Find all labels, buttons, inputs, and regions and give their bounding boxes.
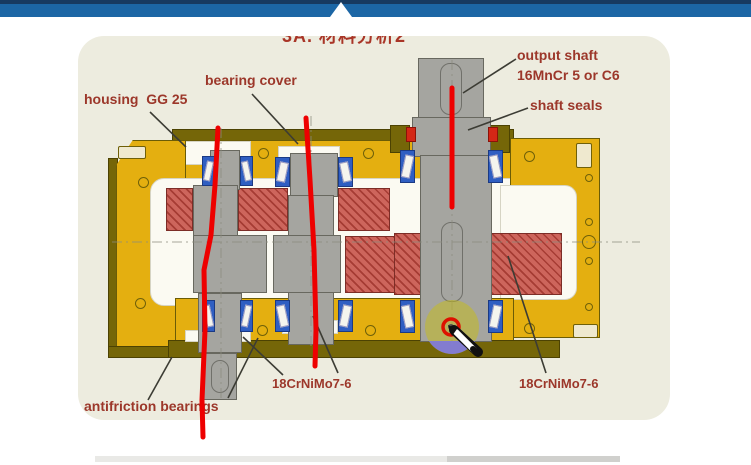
bearing-a-bottom-left — [202, 300, 215, 332]
bearing-a-top-right — [240, 156, 253, 186]
bearing-b-bottom-left — [275, 300, 290, 332]
output-shaft-keyway-top — [440, 63, 462, 115]
hex-bolt-right-top — [576, 143, 592, 168]
bearing-b-top-left — [275, 157, 290, 187]
output-shaft-keyway-long — [441, 222, 463, 302]
label-shaft-seals: shaft seals — [530, 98, 602, 113]
bolt-hole — [524, 323, 535, 334]
scrollbar-thumb[interactable] — [447, 456, 620, 462]
shaft-a-gear-hub — [193, 185, 238, 237]
bearing-c-top-right — [488, 150, 503, 183]
bolt-hole — [582, 235, 596, 249]
shaft-seal-right — [488, 127, 498, 142]
bolt-hole — [257, 325, 268, 336]
label-antifriction-bearings: antifriction bearings — [84, 399, 219, 414]
bolt-hole — [585, 174, 593, 182]
bolt-hole — [524, 151, 535, 162]
hex-bolt-right-bottom — [573, 324, 598, 338]
label-gear-material-center: 18CrNiMo7-6 — [272, 377, 351, 391]
bearing-a-top-left — [202, 156, 215, 186]
label-bearing-cover: bearing cover — [205, 73, 297, 88]
label-housing: housing GG 25 — [84, 92, 187, 107]
gear-output-left — [394, 233, 421, 295]
header-top-strip — [0, 0, 751, 4]
bearing-c-bottom-left — [400, 300, 415, 333]
label-output-shaft-material: 16MnCr 5 or C6 — [517, 68, 620, 83]
bolt-hole — [585, 257, 593, 265]
gear-stage1-right — [338, 188, 390, 231]
shaft-a-wide-hub — [193, 235, 267, 293]
bottom-scrollbar[interactable] — [95, 456, 620, 462]
gear-stage1-left — [166, 188, 193, 231]
hex-bolt-left-top — [118, 146, 146, 159]
bolt-hole — [585, 218, 593, 226]
bolt-hole — [363, 148, 374, 159]
shaft-seal-left — [406, 127, 416, 142]
bolt-hole — [365, 325, 376, 336]
bolt-hole — [138, 177, 149, 188]
bolt-hole — [585, 303, 593, 311]
bearing-c-top-left — [400, 150, 415, 183]
label-gear-material-right: 18CrNiMo7-6 — [519, 377, 598, 391]
gear-stage1-mid — [238, 188, 288, 231]
bearing-b-top-right — [338, 157, 353, 187]
bolt-hole — [258, 148, 269, 159]
slide-panel: 3A. 材料分析2 — [78, 36, 670, 420]
shaft-b-wide-hub — [273, 235, 341, 293]
bearing-b-bottom-right — [338, 300, 353, 332]
shaft-b-head — [290, 153, 338, 197]
output-shaft-upper — [412, 117, 491, 157]
top-header-bar — [0, 0, 751, 17]
screenshot-root: 3A. 材料分析2 — [0, 0, 751, 465]
bearing-c-bottom-right — [488, 300, 503, 333]
shaft-a-keyway — [211, 360, 229, 393]
bearing-a-bottom-right — [240, 300, 253, 332]
bolt-hole — [135, 298, 146, 309]
gear-output-right — [491, 233, 562, 295]
header-notch-triangle-icon — [330, 2, 352, 17]
label-output-shaft: output shaft — [517, 48, 598, 63]
